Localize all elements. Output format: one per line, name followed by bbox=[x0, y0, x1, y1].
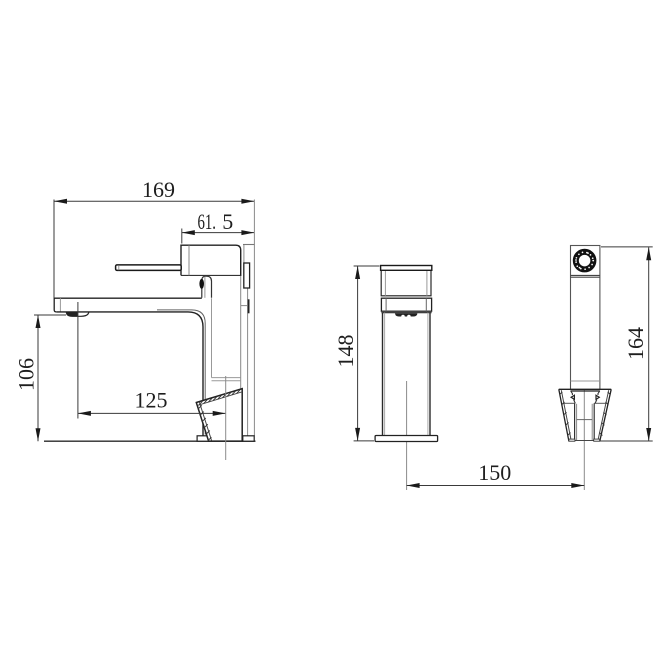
svg-text:164: 164 bbox=[623, 327, 648, 360]
svg-text:148: 148 bbox=[333, 335, 358, 368]
svg-text:106: 106 bbox=[14, 358, 39, 391]
svg-text:169: 169 bbox=[142, 177, 175, 202]
svg-text:61.: 61. bbox=[198, 209, 217, 234]
svg-text:150: 150 bbox=[478, 460, 511, 485]
svg-text:125: 125 bbox=[135, 388, 168, 413]
svg-text:5: 5 bbox=[222, 209, 233, 234]
